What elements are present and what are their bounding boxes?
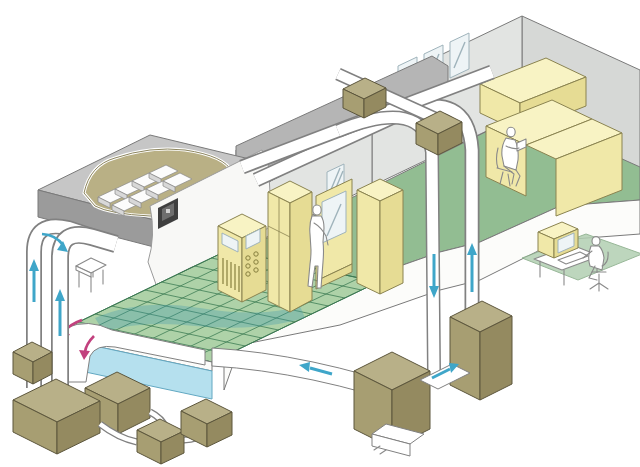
control-cabinet	[218, 214, 266, 302]
equipment-box	[137, 419, 184, 464]
control-box-button	[166, 209, 170, 213]
diagram-canvas	[0, 0, 640, 467]
equipment-cabinet	[357, 179, 403, 294]
air-handling-unit	[450, 301, 512, 400]
cleanroom-table	[76, 258, 106, 292]
isometric-hvac-diagram	[0, 0, 640, 467]
electrical-cabinet	[268, 181, 312, 312]
equipment-box	[13, 342, 52, 384]
